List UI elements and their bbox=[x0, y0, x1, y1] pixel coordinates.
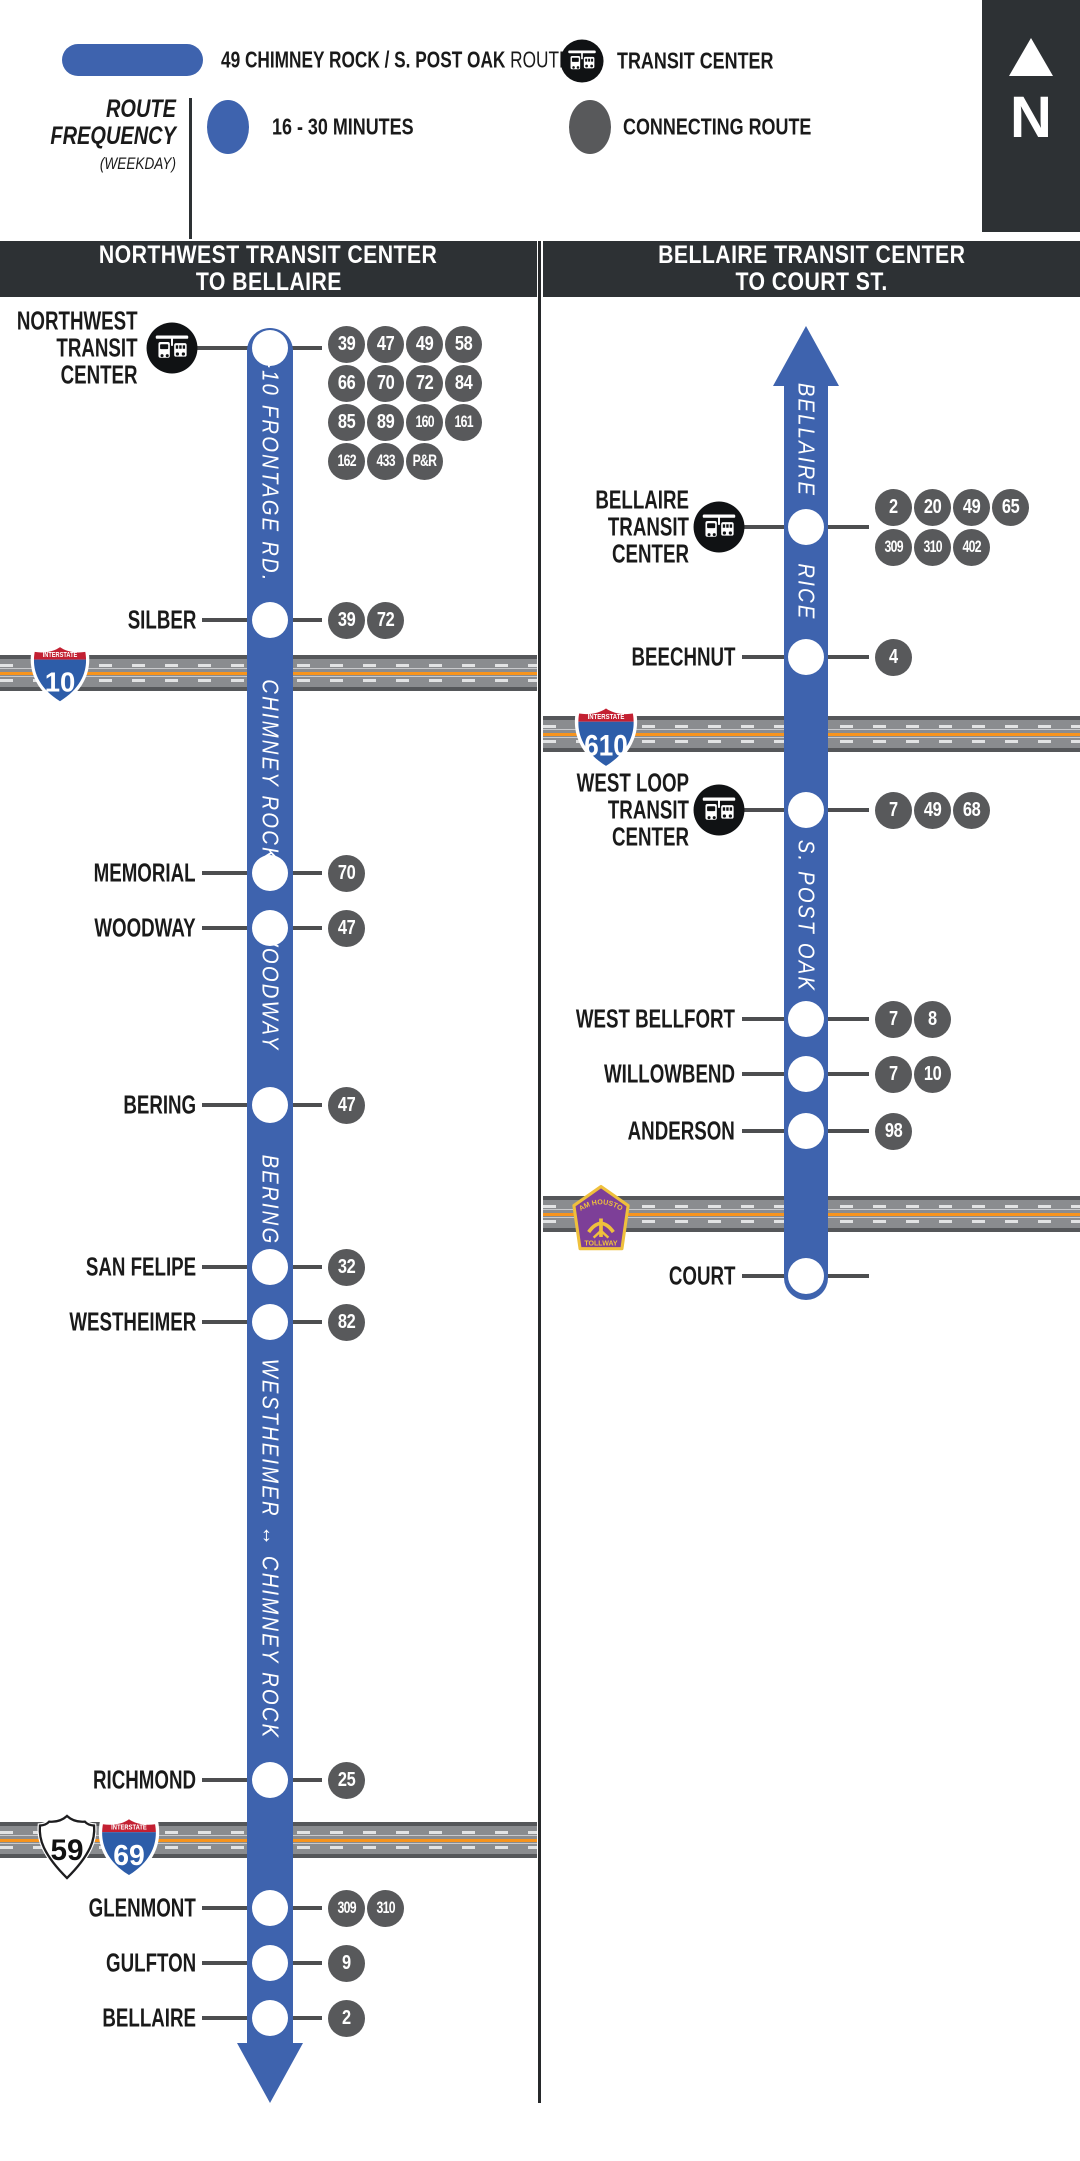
stop-label-bering: BERING bbox=[123, 1092, 196, 1119]
svg-text:TOLLWAY: TOLLWAY bbox=[584, 1240, 618, 1248]
connecting-route-bubble: 65 bbox=[992, 489, 1029, 526]
connecting-route-bubble: 310 bbox=[367, 1890, 404, 1927]
connecting-route-bubble: 433 bbox=[367, 443, 404, 480]
connecting-route-bubble: 161 bbox=[445, 404, 482, 441]
stop-label-silber: SILBER bbox=[127, 607, 196, 634]
transit-center-icon bbox=[693, 784, 745, 841]
stop-marker bbox=[252, 2000, 288, 2036]
svg-text:69: 69 bbox=[113, 1840, 145, 1872]
connecting-route-bubble: 49 bbox=[914, 792, 951, 829]
stop-label-bellaire-transit-center: BELLAIRETRANSITCENTER bbox=[595, 487, 689, 568]
street-name-label: BERING bbox=[257, 1155, 284, 1246]
header-bellaire-to-court: BELLAIRE TRANSIT CENTER TO COURT ST. bbox=[543, 241, 1080, 297]
stop-marker bbox=[252, 1087, 288, 1123]
street-name-label: I-10 FRONTAGE RD. bbox=[257, 353, 284, 582]
connecting-route-bubble: 162 bbox=[328, 443, 365, 480]
connecting-route-bubble: 47 bbox=[367, 326, 404, 363]
svg-text:INTERSTATE: INTERSTATE bbox=[111, 1823, 147, 1832]
route-arrow-up bbox=[773, 326, 839, 386]
connecting-route-bubble: 32 bbox=[328, 1249, 365, 1286]
connecting-route-bubble: 68 bbox=[953, 792, 990, 829]
stop-marker bbox=[788, 1113, 824, 1149]
stop-marker bbox=[788, 639, 824, 675]
stop-label-westloop-transit-center: WEST LOOPTRANSITCENTER bbox=[577, 770, 689, 851]
stop-marker bbox=[788, 1056, 824, 1092]
svg-text:INTERSTATE: INTERSTATE bbox=[43, 652, 78, 659]
connecting-route-bubble: 84 bbox=[445, 365, 482, 402]
connecting-route-bubble: 7 bbox=[875, 1001, 912, 1038]
connecting-route-bubble: 25 bbox=[328, 1762, 365, 1799]
connecting-route-bubble: 9 bbox=[328, 1945, 365, 1982]
highway-shield-10: INTERSTATE 10 bbox=[28, 642, 92, 711]
connecting-route-bubble: 82 bbox=[328, 1304, 365, 1341]
connecting-route-bubble: 7 bbox=[875, 1056, 912, 1093]
svg-text:610: 610 bbox=[584, 730, 628, 762]
stop-label-westbellfort: WEST BELLFORT bbox=[576, 1006, 735, 1033]
stop-marker bbox=[252, 910, 288, 946]
connecting-route-bubble: 47 bbox=[328, 1087, 365, 1124]
connecting-route-bubble: 85 bbox=[328, 404, 365, 441]
connecting-route-bubble: 309 bbox=[875, 529, 912, 566]
header-northwest-to-bellaire: NORTHWEST TRANSIT CENTER TO BELLAIRE bbox=[0, 241, 537, 297]
connecting-route-bubble: 70 bbox=[367, 365, 404, 402]
stop-label-glenmont: GLENMONT bbox=[89, 1895, 196, 1922]
connecting-route-bubble: 66 bbox=[328, 365, 365, 402]
stop-label-woodway: WOODWAY bbox=[95, 915, 196, 942]
connecting-route-bubble: 7 bbox=[875, 792, 912, 829]
stop-label-gulfton: GULFTON bbox=[106, 1950, 196, 1977]
highway-shield-69: INTERSTATE 69 bbox=[96, 1814, 162, 1885]
stop-label-westheimer: WESTHEIMER bbox=[69, 1309, 196, 1336]
stop-label-anderson: ANDERSON bbox=[628, 1118, 735, 1145]
highway-shield-tollway: SAM HOUSTON TOLLWAY bbox=[570, 1184, 632, 1258]
highway-shield-610: INTERSTATE 610 bbox=[572, 703, 640, 776]
connecting-route-bubble: 70 bbox=[328, 855, 365, 892]
street-name-label: CHIMNEY ROCK bbox=[257, 679, 284, 862]
stop-label-northwest-transit-center: NORTHWESTTRANSITCENTER bbox=[17, 308, 138, 389]
stop-marker bbox=[252, 1249, 288, 1285]
stop-marker bbox=[788, 792, 824, 828]
connecting-route-bubble: 8 bbox=[914, 1001, 951, 1038]
stop-marker bbox=[788, 509, 824, 545]
connecting-route-bubble: 2 bbox=[328, 2000, 365, 2037]
connecting-route-bubble: 402 bbox=[953, 529, 990, 566]
connecting-route-bubble: 160 bbox=[406, 404, 443, 441]
connecting-route-bubble: 98 bbox=[875, 1113, 912, 1150]
stop-marker bbox=[252, 1890, 288, 1926]
stop-label-beechnut: BEECHNUT bbox=[631, 644, 735, 671]
connecting-route-bubble: 49 bbox=[406, 326, 443, 363]
connecting-route-bubble: 89 bbox=[367, 404, 404, 441]
stop-label-court: COURT bbox=[668, 1263, 735, 1290]
connecting-route-bubble: 309 bbox=[328, 1890, 365, 1927]
svg-text:10: 10 bbox=[45, 666, 76, 697]
stop-label-willowbend: WILLOWBEND bbox=[604, 1061, 735, 1088]
connecting-route-bubble: 47 bbox=[328, 910, 365, 947]
connecting-route-bubble: 10 bbox=[914, 1056, 951, 1093]
stop-marker bbox=[788, 1258, 824, 1294]
stop-marker bbox=[252, 602, 288, 638]
street-name-label: BELLAIRE bbox=[793, 383, 820, 497]
street-name-label: S. POST OAK bbox=[793, 840, 820, 992]
connecting-route-bubble: 58 bbox=[445, 326, 482, 363]
connecting-route-bubble: 72 bbox=[367, 602, 404, 639]
route-map: I-10 FRONTAGE RD.CHIMNEY ROCKWOODWAYBERI… bbox=[0, 0, 1080, 2161]
stop-marker bbox=[788, 1001, 824, 1037]
street-name-label: WESTHEIMER ↔ CHIMNEY ROCK bbox=[257, 1359, 284, 1740]
connecting-route-bubble: 310 bbox=[914, 529, 951, 566]
stop-label-sanfelipe: SAN FELIPE bbox=[86, 1254, 196, 1281]
svg-text:INTERSTATE: INTERSTATE bbox=[588, 712, 625, 721]
connecting-route-bubble: 49 bbox=[953, 489, 990, 526]
stop-marker bbox=[252, 1304, 288, 1340]
connecting-route-bubble: 4 bbox=[875, 639, 912, 676]
connecting-route-bubble: P&R bbox=[406, 443, 443, 480]
street-name-label: RICE bbox=[793, 563, 820, 620]
route-map-poster: 49 CHIMNEY ROCK / S. POST OAK ROUTE TRAN… bbox=[0, 0, 1080, 2161]
connecting-route-bubble: 72 bbox=[406, 365, 443, 402]
route-arrow-down bbox=[237, 2043, 303, 2103]
connecting-route-bubble: 20 bbox=[914, 489, 951, 526]
transit-center-icon bbox=[693, 501, 745, 558]
stop-label-bellaire: BELLAIRE bbox=[102, 2005, 196, 2032]
stop-marker bbox=[252, 330, 288, 366]
highway-shield-59: 59 bbox=[34, 1814, 100, 1885]
transit-center-icon bbox=[146, 322, 198, 379]
connecting-route-bubble: 2 bbox=[875, 489, 912, 526]
connecting-route-bubble: 39 bbox=[328, 326, 365, 363]
stop-marker bbox=[252, 855, 288, 891]
stop-label-memorial: MEMORIAL bbox=[94, 860, 196, 887]
stop-marker bbox=[252, 1945, 288, 1981]
svg-text:59: 59 bbox=[50, 1834, 83, 1867]
stop-marker bbox=[252, 1762, 288, 1798]
stop-label-richmond: RICHMOND bbox=[93, 1767, 196, 1794]
connecting-route-bubble: 39 bbox=[328, 602, 365, 639]
